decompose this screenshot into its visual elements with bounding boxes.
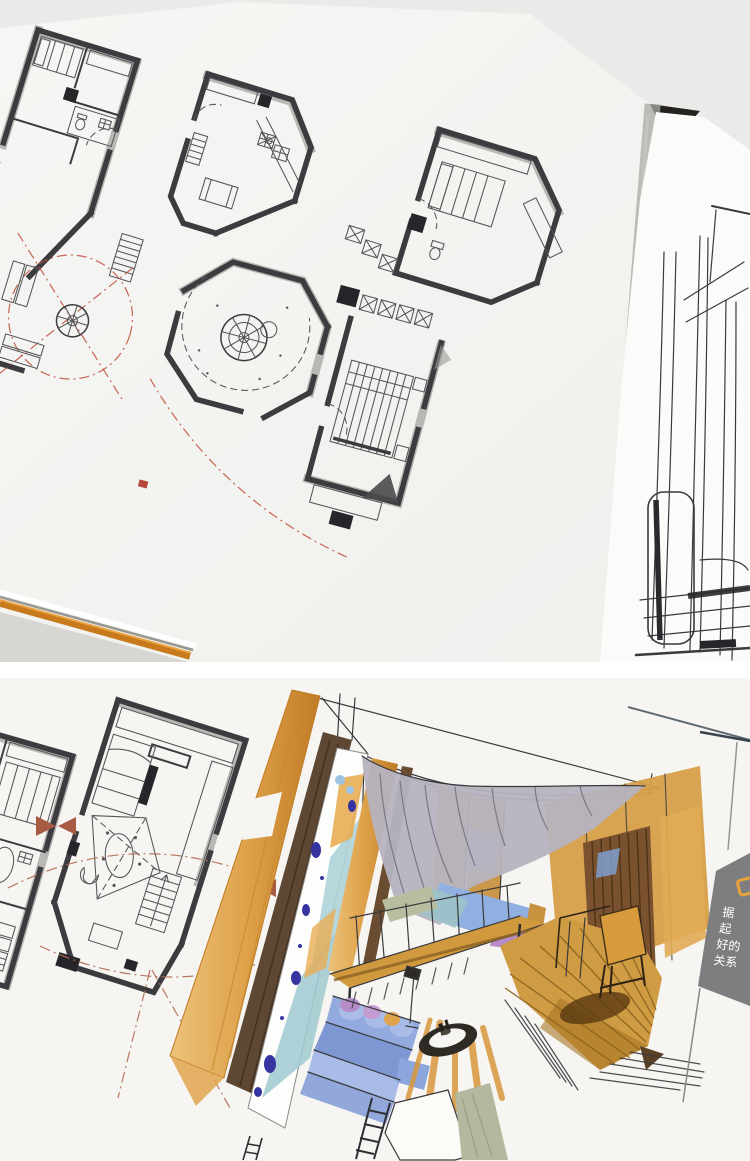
caption-line-1: 据 (722, 905, 736, 920)
sofa-cushion-purple (340, 998, 360, 1012)
photo-bottom-sketch-page: 据 起 好的 关系 (0, 678, 750, 1161)
caption-line-2: 起 (719, 921, 733, 936)
photo-top-book-spread (0, 0, 750, 662)
caption-line-4: 关系 (713, 953, 739, 970)
photo-separator (0, 662, 750, 678)
product-photo-collage: 据 起 好的 关系 (0, 0, 750, 1161)
caption-line-3: 好的 (716, 936, 742, 954)
